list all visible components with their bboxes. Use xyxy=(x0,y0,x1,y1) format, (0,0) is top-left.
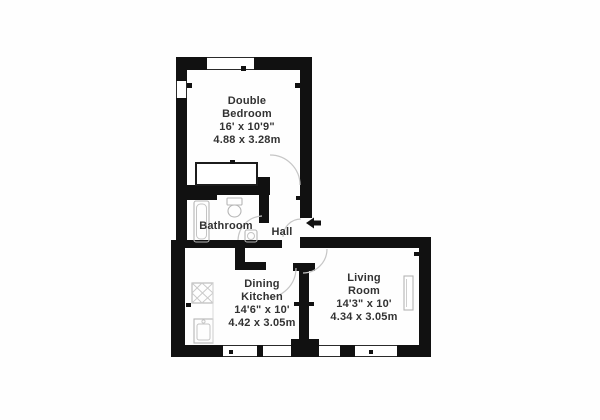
tick-cupboard xyxy=(230,160,235,164)
toilet-cistern xyxy=(227,198,242,205)
wall-left-lower xyxy=(171,240,185,357)
living-dims-imperial: 14'3" x 10' xyxy=(309,298,419,311)
bedroom-top-window xyxy=(207,57,255,70)
bedroom-dims-imperial: 16' x 10'9" xyxy=(187,121,307,134)
wall-living-top xyxy=(300,237,431,248)
hall-label: Hall xyxy=(262,226,302,239)
bedroom-label: Double Bedroom 16' x 10'9" 4.88 x 3.28m xyxy=(187,95,307,147)
bedroom-name-line1: Double xyxy=(187,95,307,108)
wall-left-upper xyxy=(176,57,187,81)
tick-kitchen-left xyxy=(186,303,191,307)
bedroom-dims-metric: 4.88 x 3.28m xyxy=(187,134,307,147)
tick-hall-wall xyxy=(296,196,301,200)
washbasin-inner xyxy=(248,233,255,240)
sink-tap xyxy=(202,320,205,323)
entrance-arrow-icon xyxy=(306,218,321,229)
bathroom-name: Bathroom xyxy=(186,220,266,233)
living-dims-metric: 4.34 x 3.05m xyxy=(309,311,419,324)
floorplan-image: Double Bedroom 16' x 10'9" 4.88 x 3.28m … xyxy=(0,0,600,420)
bathroom-label: Bathroom xyxy=(186,220,266,233)
living-window-left xyxy=(319,345,340,357)
wall-bathroom-bottom xyxy=(171,240,282,248)
tick-right-wall xyxy=(295,83,300,88)
bedroom-side-window xyxy=(176,81,187,98)
bedroom-door-arc xyxy=(270,155,300,185)
tick-living-top xyxy=(358,244,364,248)
living-window-right xyxy=(355,345,397,357)
hall-name: Hall xyxy=(262,226,302,239)
wall-bathroom-right xyxy=(259,185,269,223)
wall-bathroom-top-step xyxy=(182,191,217,200)
bedroom-cupboard xyxy=(195,162,258,186)
tick-kitchen-window xyxy=(229,350,233,354)
kitchen-dims-imperial: 14'6" x 10' xyxy=(206,304,318,317)
living-window-pier xyxy=(340,345,355,357)
tick-living-right xyxy=(414,252,419,256)
bedroom-name-line2: Bedroom xyxy=(187,108,307,121)
kitchen-name-line1: Dining xyxy=(206,278,318,291)
living-label: Living Room 14'3" x 10' 4.34 x 3.05m xyxy=(309,272,419,324)
tick-living-window xyxy=(369,350,373,354)
living-name-line1: Living xyxy=(309,272,419,285)
wall-bottom-left-corner xyxy=(171,345,223,357)
tick-top-window xyxy=(241,66,246,71)
tick-left-wall xyxy=(187,83,192,88)
kitchen-dims-metric: 4.42 x 3.05m xyxy=(206,317,318,330)
toilet-bowl xyxy=(228,205,241,217)
living-name-line2: Room xyxy=(309,285,419,298)
wall-left-mid xyxy=(176,98,187,240)
wall-living-right xyxy=(419,237,431,357)
kitchen-label: Dining Kitchen 14'6" x 10' 4.42 x 3.05m xyxy=(206,278,318,330)
kitchen-window-right xyxy=(263,345,292,357)
wall-kitchen-jamb-foot xyxy=(235,262,266,270)
wall-bottom-right-corner xyxy=(397,345,431,357)
kitchen-name-line2: Kitchen xyxy=(206,291,318,304)
